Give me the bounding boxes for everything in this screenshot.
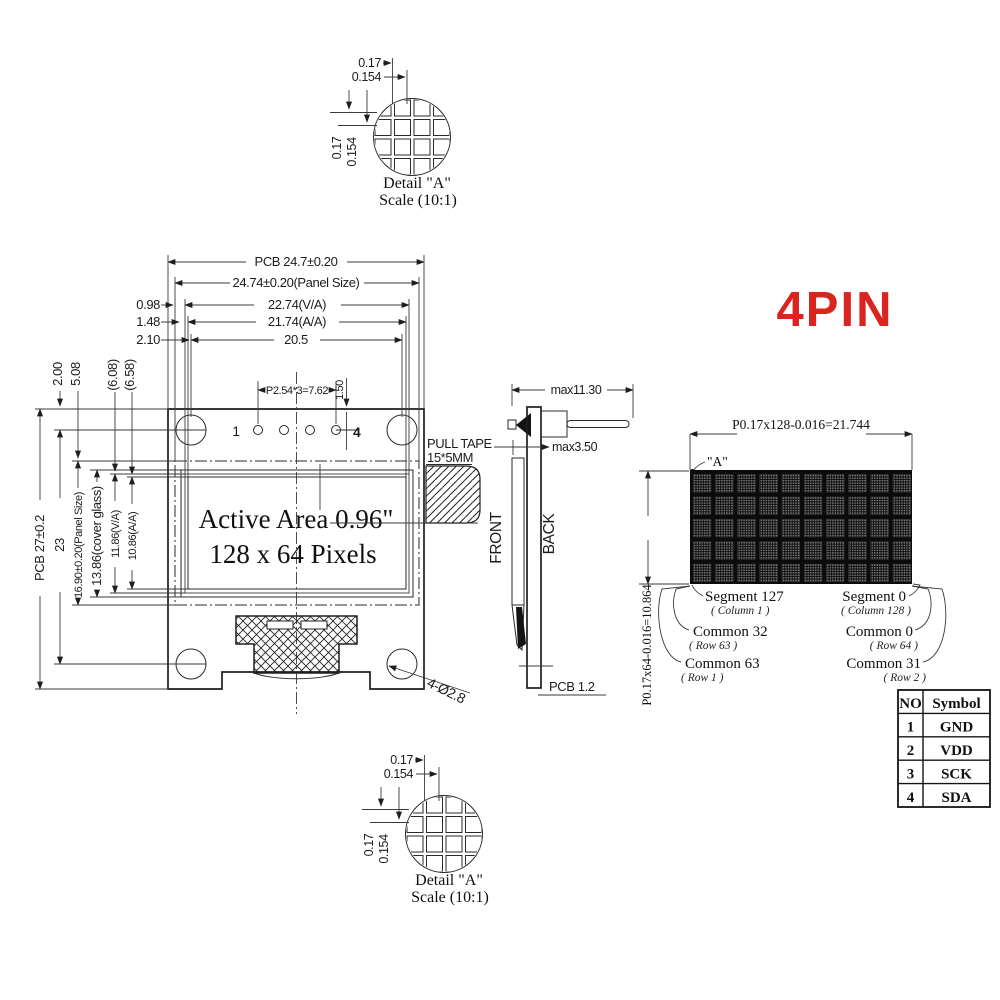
matrix-pixels: [691, 472, 911, 582]
table-header-symbol: Symbol: [932, 696, 980, 712]
detail-label: Detail "A": [383, 175, 451, 192]
front-view: 1 4 P2.54*3=7.62 1.50 Active Area 0.96" …: [32, 254, 493, 714]
detail-dim-size-h: 0.154: [352, 70, 382, 84]
common-63-label: Common 63: [685, 656, 760, 672]
matrix-labels-left: Segment 127 ( Column 1 ) Common 32 ( Row…: [681, 589, 784, 684]
side-dim-width: max11.30: [551, 383, 602, 397]
pin-body: [541, 411, 567, 437]
pin-4-symbol: SDA: [941, 790, 971, 806]
side-view: max11.30 max3.50 FRONT BACK PCB 1.2: [488, 383, 633, 695]
offset-098: 0.98: [136, 297, 160, 312]
dim-va-height: 11.86(V/A): [110, 510, 122, 558]
pin-4-no: 4: [907, 790, 915, 806]
detail-dim-pitch-v: 0.17: [330, 136, 344, 159]
pin-3-no: 3: [907, 767, 915, 783]
front-label: FRONT: [488, 511, 505, 563]
stub-658: (6.58): [122, 359, 137, 391]
matrix-dim-h: P0.17x128-0.016=21.744: [732, 417, 870, 432]
dim-hole-vspan: 23: [52, 538, 67, 552]
dim-pcb-height: PCB 27±0.2: [32, 515, 47, 581]
hole-note-label: 4-Ø2.8: [425, 674, 469, 706]
pin-wire: [567, 421, 629, 428]
pull-tape-label2: 15*5MM: [427, 450, 473, 465]
connector-slot-left: [267, 621, 293, 629]
offset-148: 1.48: [136, 314, 160, 329]
pin-head: [516, 413, 531, 437]
pin-2-symbol: VDD: [940, 743, 973, 759]
dim-aa-width: 21.74(A/A): [268, 314, 326, 329]
detail-pixel-grid: [407, 797, 482, 872]
detail-scale: Scale (10:1): [379, 192, 457, 209]
detail-dim-pitch-h: 0.17: [358, 56, 381, 70]
pin-number-first: 1: [232, 423, 240, 439]
dim-hole-span: 20.5: [284, 332, 308, 347]
table-header-no: NO: [899, 696, 922, 712]
stub-608: (6.08): [105, 359, 120, 391]
dim-va-width: 22.74(V/A): [268, 297, 326, 312]
dim-glass-height: 13.86(cover glass): [89, 486, 104, 586]
bottom-connector: [236, 616, 357, 679]
pin-offset-label: 1.50: [334, 380, 346, 400]
active-area-line2: 128 x 64 Pixels: [209, 539, 376, 569]
pull-tape: PULL TAPE 15*5MM: [426, 436, 493, 523]
offset-210: 2.10: [136, 332, 160, 347]
detail-callouts: 0.17 0.154 0.17 0.154: [362, 753, 439, 864]
detail-dim-size-h: 0.154: [384, 767, 414, 781]
matrix-corner-leader: [694, 462, 705, 470]
pull-tape-hatch: [426, 466, 480, 523]
pull-tape-label1: PULL TAPE: [427, 436, 493, 451]
detail-dim-pitch-h: 0.17: [390, 753, 413, 767]
row-2-label: ( Row 2 ): [884, 672, 927, 684]
pin-2-no: 2: [907, 743, 915, 759]
stub-508: 5.08: [68, 362, 83, 386]
drawing-svg: 0.17 0.154 0.17 0.154 Detail "A" Scale (…: [0, 0, 1000, 1000]
matrix-labels-right: Segment 0 ( Column 128 ) Common 0 ( Row …: [841, 589, 926, 684]
active-area-line1: Active Area 0.96": [199, 504, 394, 534]
pin-1-symbol: GND: [940, 720, 974, 736]
dim-aa-height: 10.86(A/A): [127, 512, 139, 561]
common-0-label: Common 0: [846, 624, 913, 640]
pin-tip: [508, 420, 516, 429]
detail-view-top: 0.17 0.154 0.17 0.154 Detail "A" Scale (…: [330, 56, 457, 209]
pin-holes: [254, 426, 360, 435]
dim-pcb-width: PCB 24.7±0.20: [255, 254, 338, 269]
row-1-label: ( Row 1 ): [681, 672, 724, 684]
oled-datasheet-drawing: 0.17 0.154 0.17 0.154 Detail "A" Scale (…: [0, 0, 1000, 1000]
detail-dim-pitch-v: 0.17: [362, 833, 376, 856]
stub-200: 2.00: [50, 362, 65, 386]
side-pcb-bar: [527, 407, 541, 688]
dim-panel-height: 16.90±0.20(Panel Size): [73, 492, 85, 598]
pin-pitch-dimension: P2.54*3=7.62 1.50: [258, 378, 347, 450]
row-63-label: ( Row 63 ): [689, 640, 737, 652]
pin-number-last: 4: [353, 424, 361, 440]
dim-panel-width: 24.74±0.20(Panel Size): [233, 275, 360, 290]
side-glass-bar: [512, 458, 524, 605]
segment-0-label: Segment 0: [842, 589, 906, 605]
pin-table: NO Symbol 1 GND 2 VDD 3 SCK 4 SDA: [898, 690, 990, 807]
detail-dim-size-v: 0.154: [377, 834, 391, 864]
column-1-label: ( Column 1 ): [711, 605, 770, 617]
detail-scale: Scale (10:1): [411, 889, 489, 906]
common-32-label: Common 32: [693, 624, 768, 640]
top-dimensions: PCB 24.7±0.20 24.74±0.20(Panel Size) 22.…: [136, 254, 424, 477]
page-title: 4PIN: [777, 283, 894, 337]
column-128-label: ( Column 128 ): [841, 605, 911, 617]
side-dim-pcb: PCB 1.2: [549, 679, 595, 694]
pin-1-no: 1: [907, 720, 915, 736]
matrix-corner-label: "A": [707, 454, 728, 469]
detail-callouts: 0.17 0.154 0.17 0.154: [330, 56, 407, 167]
pin-pitch-label: P2.54*3=7.62: [266, 385, 328, 397]
row-64-label: ( Row 64 ): [870, 640, 918, 652]
connector-slot-right: [301, 621, 327, 629]
pin-3-symbol: SCK: [941, 767, 972, 783]
side-fpc-fill: [516, 607, 526, 649]
matrix-diagram: P0.17x128-0.016=21.744 "A" P0.17x64-0.01…: [639, 417, 946, 706]
back-label: BACK: [541, 513, 558, 555]
detail-dim-size-v: 0.154: [345, 137, 359, 167]
hole-callout: 4-Ø2.8: [389, 666, 470, 707]
matrix-dim-v: P0.17x64-0.016=10.864: [640, 584, 654, 706]
common-31-label: Common 31: [846, 656, 921, 672]
detail-label: Detail "A": [415, 872, 483, 889]
segment-127-label: Segment 127: [705, 589, 784, 605]
detail-view-bottom: 0.17 0.154 0.17 0.154 Detail "A" Scale (…: [362, 753, 489, 906]
side-dim-tape: max3.50: [552, 440, 598, 454]
detail-pixel-grid: [375, 100, 450, 175]
